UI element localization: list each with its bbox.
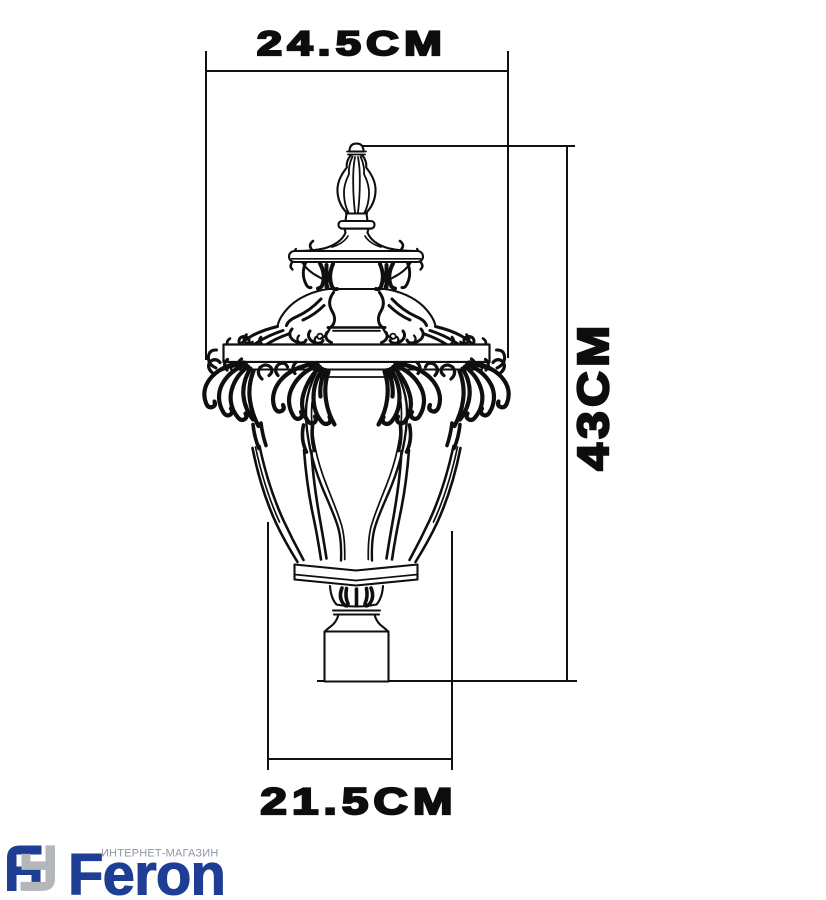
svg-text:24.5CM: 24.5CM <box>257 25 447 62</box>
svg-text:ИНТЕРНЕТ-МАГАЗИН: ИНТЕРНЕТ-МАГАЗИН <box>101 848 219 860</box>
svg-text:43CM: 43CM <box>568 321 617 470</box>
svg-text:21.5CM: 21.5CM <box>260 781 457 823</box>
